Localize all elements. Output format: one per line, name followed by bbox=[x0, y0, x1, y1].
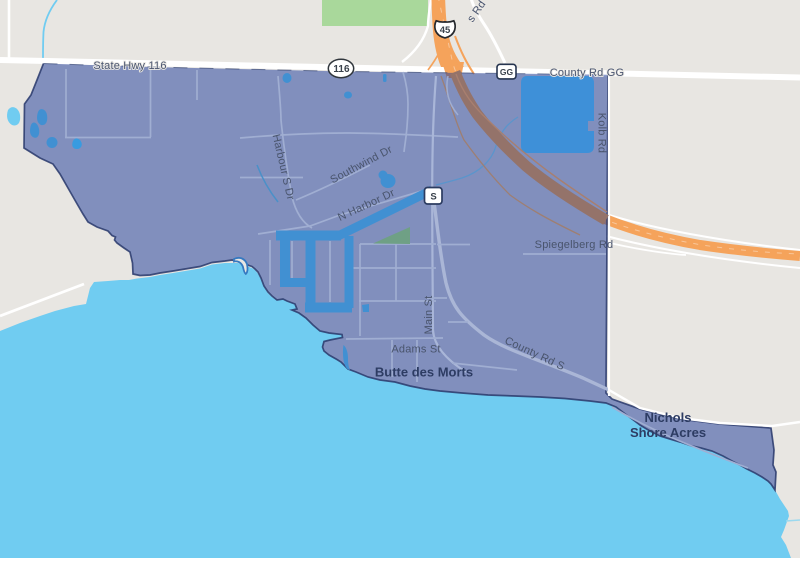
svg-text:Adams St: Adams St bbox=[391, 344, 440, 356]
svg-text:Spiegelberg Rd: Spiegelberg Rd bbox=[535, 239, 614, 251]
svg-text:45: 45 bbox=[440, 25, 451, 36]
svg-text:County Rd GG: County Rd GG bbox=[550, 67, 625, 79]
svg-text:Main St: Main St bbox=[423, 296, 435, 335]
svg-text:116: 116 bbox=[333, 64, 350, 75]
svg-text:GG: GG bbox=[500, 67, 514, 77]
svg-text:Shore Acres: Shore Acres bbox=[630, 425, 706, 440]
svg-text:State Hwy 116: State Hwy 116 bbox=[93, 60, 166, 72]
svg-text:Kolb Rd: Kolb Rd bbox=[596, 113, 608, 154]
svg-text:Butte des Morts: Butte des Morts bbox=[375, 365, 473, 380]
svg-text:Nichols: Nichols bbox=[645, 410, 692, 425]
svg-text:S: S bbox=[430, 192, 436, 203]
